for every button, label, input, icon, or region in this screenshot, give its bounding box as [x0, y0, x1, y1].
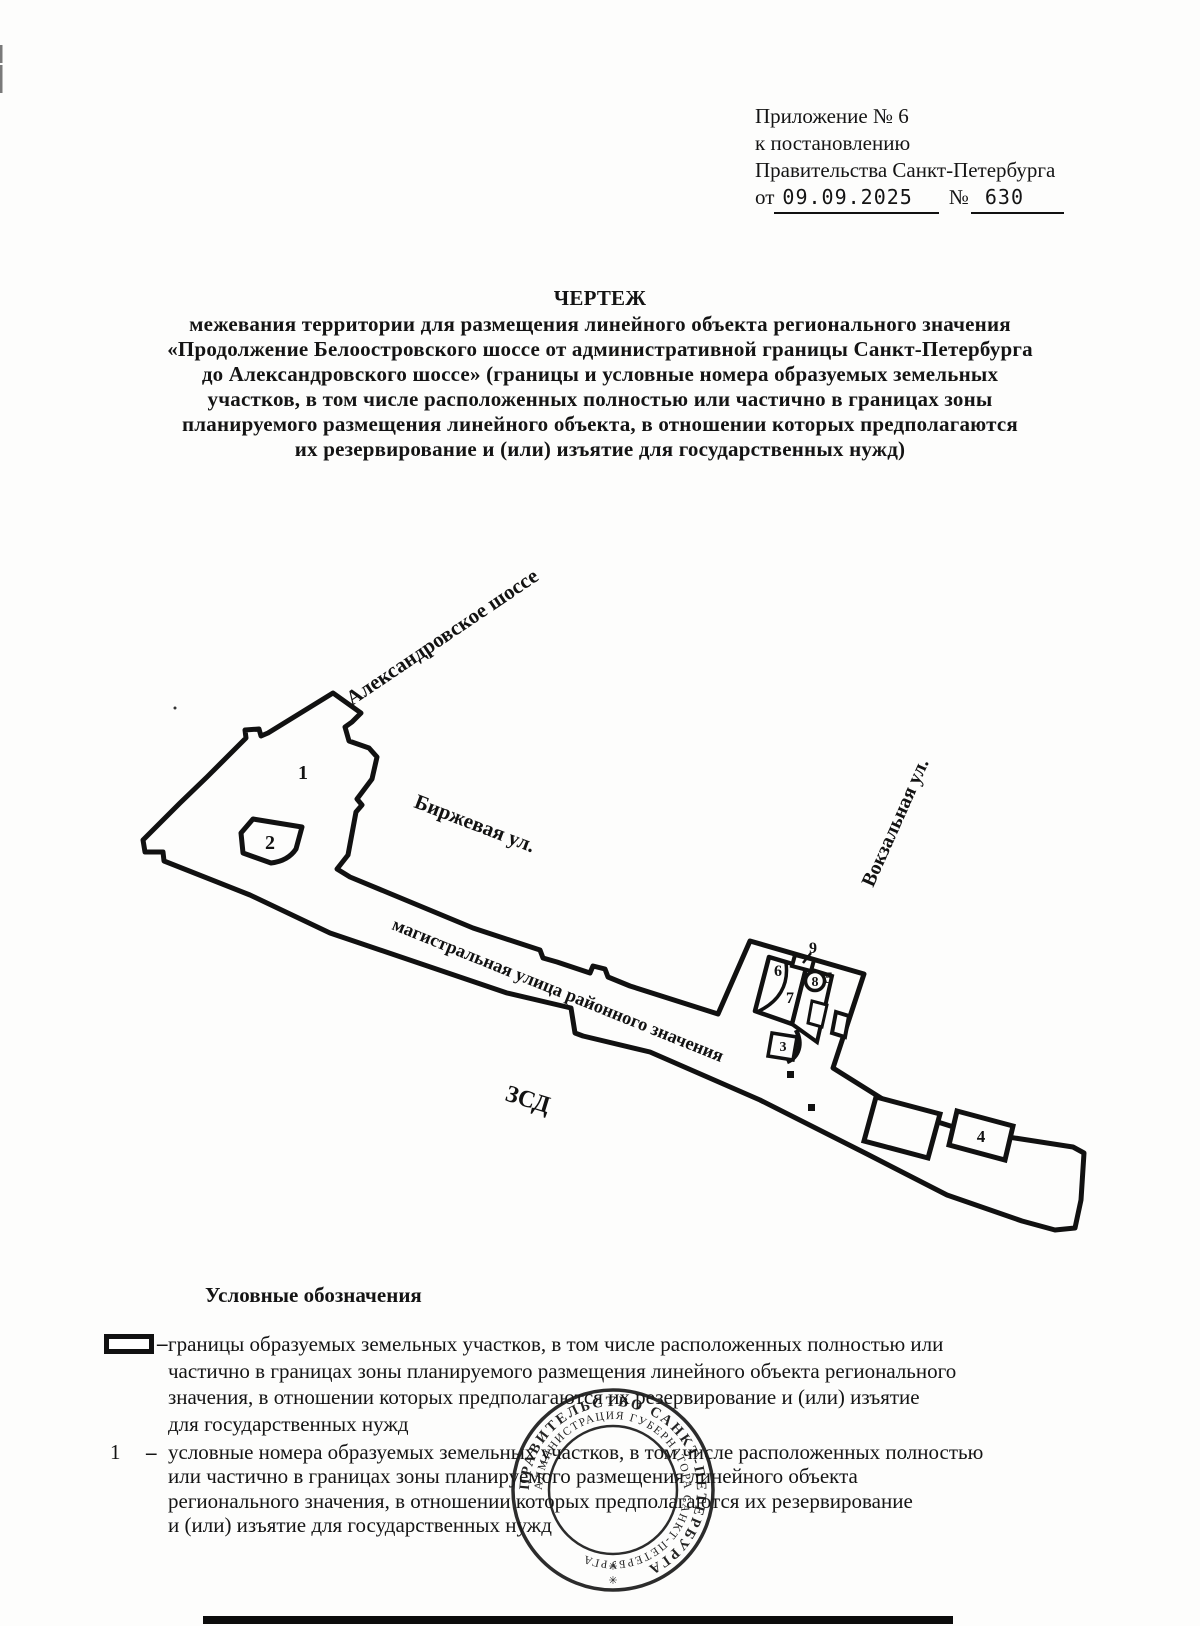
parcel-9-rect [792, 955, 814, 971]
legend-item-numbers: условные номера образуемых земельных уча… [168, 1440, 983, 1537]
parcel-divider-line [757, 963, 787, 1012]
parcel-4-boundary [949, 1111, 1013, 1160]
legend-text-line: границы образуемых земельных участков, в… [168, 1331, 956, 1358]
legend-text-line: для государственных нужд [168, 1411, 956, 1438]
street-label-alexandrovskoe: Александровское шоссе [341, 564, 542, 711]
small-parcel-rect [832, 1012, 849, 1037]
title-line: планируемого размещения линейного объект… [100, 412, 1100, 437]
parcel-label-3: 3 [780, 1040, 787, 1055]
parcel-label-1: 1 [298, 762, 308, 784]
parcel-label-7: 7 [786, 990, 794, 1007]
title-line: до Александровского шоссе» (границы и ус… [100, 362, 1100, 387]
parcel-5-boundary [792, 968, 832, 1042]
legend-text-line: частично в границах зоны планируемого ра… [168, 1358, 956, 1385]
number-sign: № [949, 185, 969, 209]
survey-point-dot [787, 1071, 794, 1078]
decree-date: 09.09.2025 [774, 184, 938, 214]
parcel-8-circle [806, 972, 825, 991]
date-prefix: от [755, 185, 774, 209]
scan-edge-mark [0, 65, 3, 93]
parcel-6-7-boundary [755, 957, 806, 1024]
boundary-hook-line [787, 1030, 799, 1062]
small-parcel-rect [808, 1001, 827, 1027]
parcel-3-box [768, 1033, 797, 1060]
unlabeled-parcel-rect [864, 1097, 940, 1158]
header-line-3: Правительства Санкт-Петербурга [755, 157, 1064, 184]
decree-number: 630 [971, 184, 1064, 214]
header-block: Приложение № 6 к постановлению Правитель… [755, 103, 1064, 214]
title-line: «Продолжение Белоостровского шоссе от ад… [100, 337, 1100, 362]
survey-point-dot [808, 1104, 815, 1111]
parcel-9-leader-line [803, 953, 811, 963]
legend-item-boundaries: границы образуемых земельных участков, в… [168, 1331, 956, 1437]
legend-heading: Условные обозначения [205, 1283, 422, 1308]
street-label-vokzalnaya: Вокзальная ул. [857, 755, 933, 890]
parcel-label-6: 6 [774, 963, 782, 980]
road-label-zsd: ЗСД [502, 1081, 553, 1119]
parcel-label-5: 5 [825, 970, 833, 987]
header-line-1: Приложение № 6 [755, 103, 1064, 130]
title-block: ЧЕРТЕЖ межевания территории для размещен… [100, 286, 1100, 462]
parcel-2-boundary [241, 819, 302, 863]
street-label-magistralnaya: магистральная улица районного значения [389, 915, 726, 1067]
stamp-star: ✳ [608, 1575, 617, 1587]
legend-text-line: или частично в границах зоны планируемог… [168, 1464, 983, 1488]
parcel-label-4: 4 [977, 1127, 986, 1146]
stamp-star: ✳ [608, 1561, 617, 1573]
legend-text-line: регионального значения, в отношении кото… [168, 1489, 983, 1513]
street-label-birzhevaya: Биржевая ул. [411, 789, 539, 857]
scan-bottom-bar [203, 1616, 953, 1624]
title-line: участков, в том числе расположенных полн… [100, 387, 1100, 412]
parcel-boundary-outline [143, 693, 1084, 1230]
parcel-label-8: 8 [812, 975, 819, 990]
ink-speck [174, 707, 177, 710]
legend-text-line: и (или) изъятие для государственных нужд [168, 1513, 983, 1537]
header-line-4: от09.09.2025№630 [755, 184, 1064, 214]
legend-number-symbol: 1 [110, 1440, 121, 1465]
parcel-label-2: 2 [265, 832, 275, 854]
legend-text-line: значения, в отношении которых предполага… [168, 1384, 956, 1411]
header-line-2: к постановлению [755, 130, 1064, 157]
legend-dash: – [157, 1331, 168, 1356]
legend-boundary-symbol [104, 1334, 154, 1354]
legend-text-line: условные номера образуемых земельных уча… [168, 1440, 983, 1464]
legend-dash: – [146, 1440, 157, 1465]
title-line: межевания территории для размещения лине… [100, 312, 1100, 337]
document-page: Приложение № 6 к постановлению Правитель… [0, 0, 1200, 1626]
title-line: их резервирование и (или) изъятие для го… [100, 437, 1100, 462]
drawing-title: ЧЕРТЕЖ [100, 286, 1100, 311]
scan-edge-mark [0, 45, 3, 63]
parcel-label-9: 9 [809, 940, 817, 957]
